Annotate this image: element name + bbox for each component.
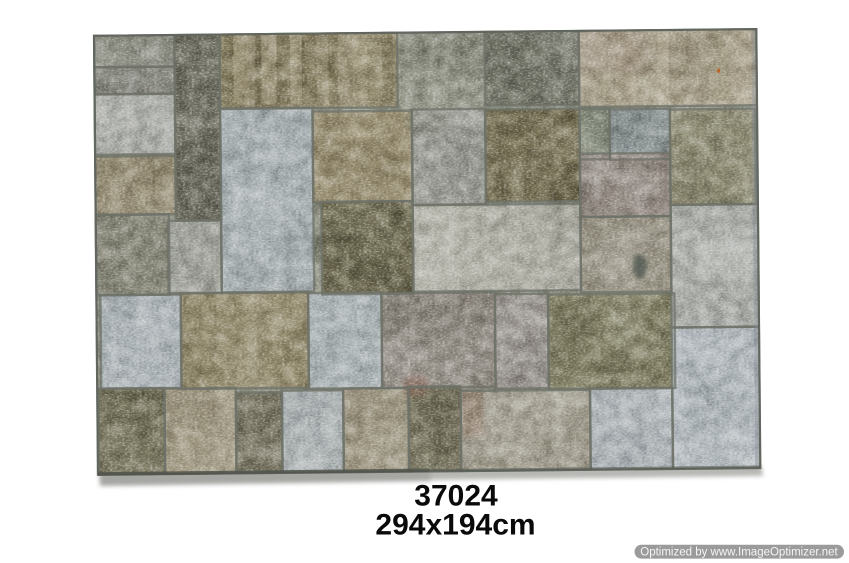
svg-text:294x194cm: 294x194cm bbox=[375, 509, 535, 542]
svg-text:Optimized by www.ImageOptimize: Optimized by www.ImageOptimizer.net bbox=[640, 547, 838, 559]
